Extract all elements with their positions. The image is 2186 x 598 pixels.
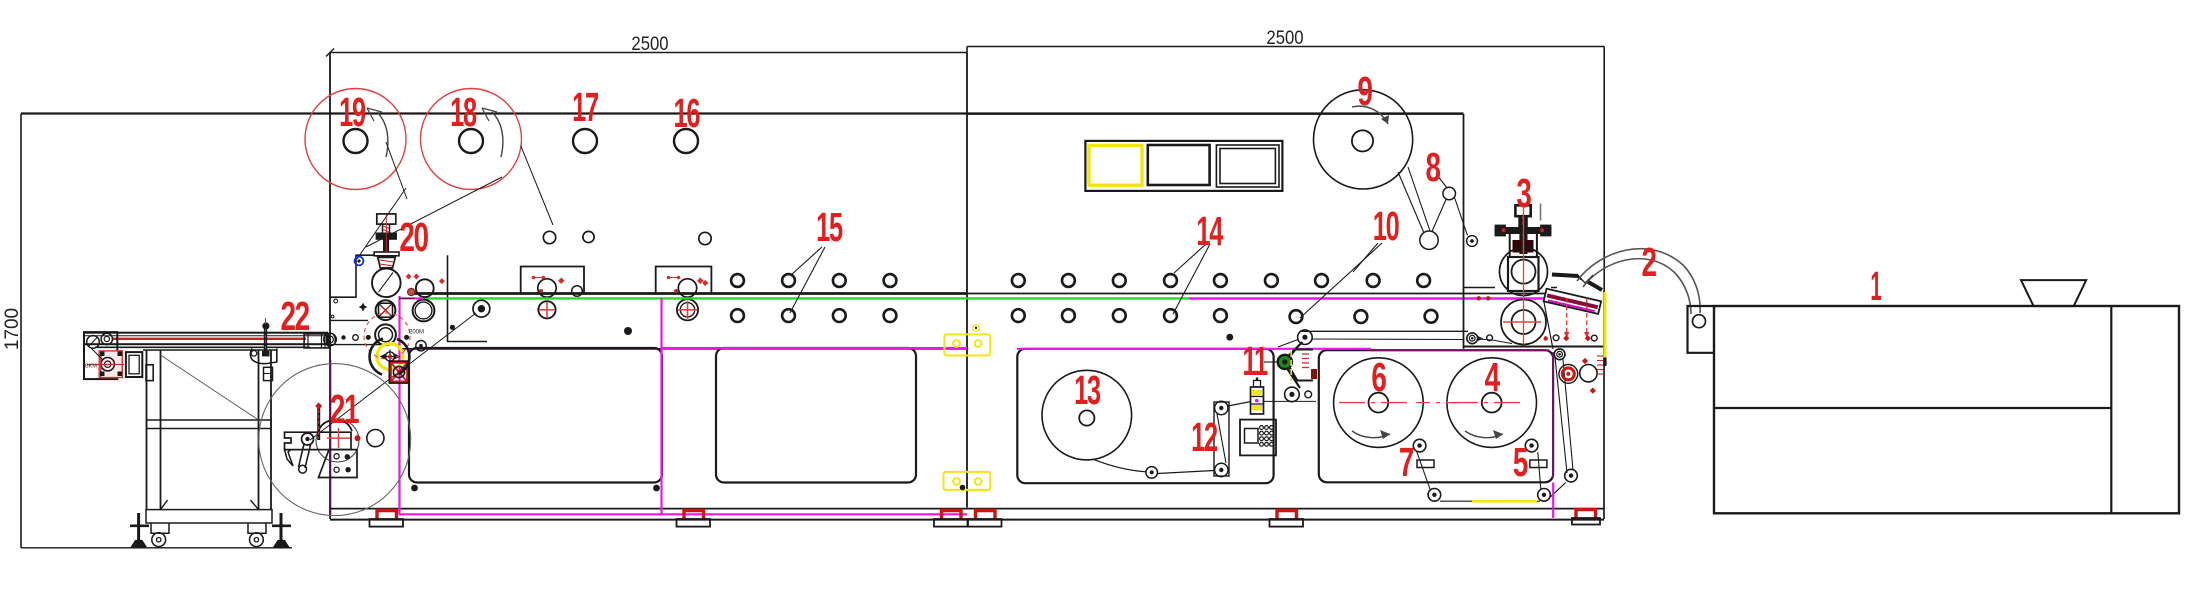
svg-text:13: 13 — [1074, 368, 1100, 414]
svg-text:6: 6 — [1371, 355, 1386, 401]
svg-text:21: 21 — [330, 387, 359, 433]
svg-text:BKM: BKM — [85, 364, 97, 370]
svg-text:15: 15 — [816, 205, 843, 251]
svg-text:200M: 200M — [409, 330, 424, 336]
svg-text:11: 11 — [1243, 339, 1269, 385]
svg-text:2500: 2500 — [631, 33, 668, 54]
svg-text:4: 4 — [1485, 355, 1501, 401]
svg-text:3: 3 — [1516, 171, 1531, 217]
svg-text:9: 9 — [1358, 69, 1373, 115]
svg-text:7: 7 — [1399, 440, 1413, 486]
svg-text:10: 10 — [1373, 204, 1399, 250]
svg-text:1: 1 — [1870, 263, 1881, 309]
svg-text:16: 16 — [673, 91, 699, 137]
svg-text:1700: 1700 — [2, 308, 23, 350]
svg-text:17: 17 — [572, 85, 598, 131]
svg-text:8: 8 — [1426, 145, 1441, 191]
svg-text:22: 22 — [280, 294, 309, 340]
svg-text:19: 19 — [339, 90, 365, 136]
svg-text:20: 20 — [399, 215, 428, 261]
svg-text:14: 14 — [1196, 209, 1223, 255]
svg-text:2: 2 — [1642, 240, 1657, 286]
svg-text:5: 5 — [1513, 440, 1528, 486]
svg-text:12: 12 — [1191, 415, 1217, 461]
svg-text:2500: 2500 — [1266, 27, 1303, 48]
svg-text:18: 18 — [450, 90, 476, 136]
